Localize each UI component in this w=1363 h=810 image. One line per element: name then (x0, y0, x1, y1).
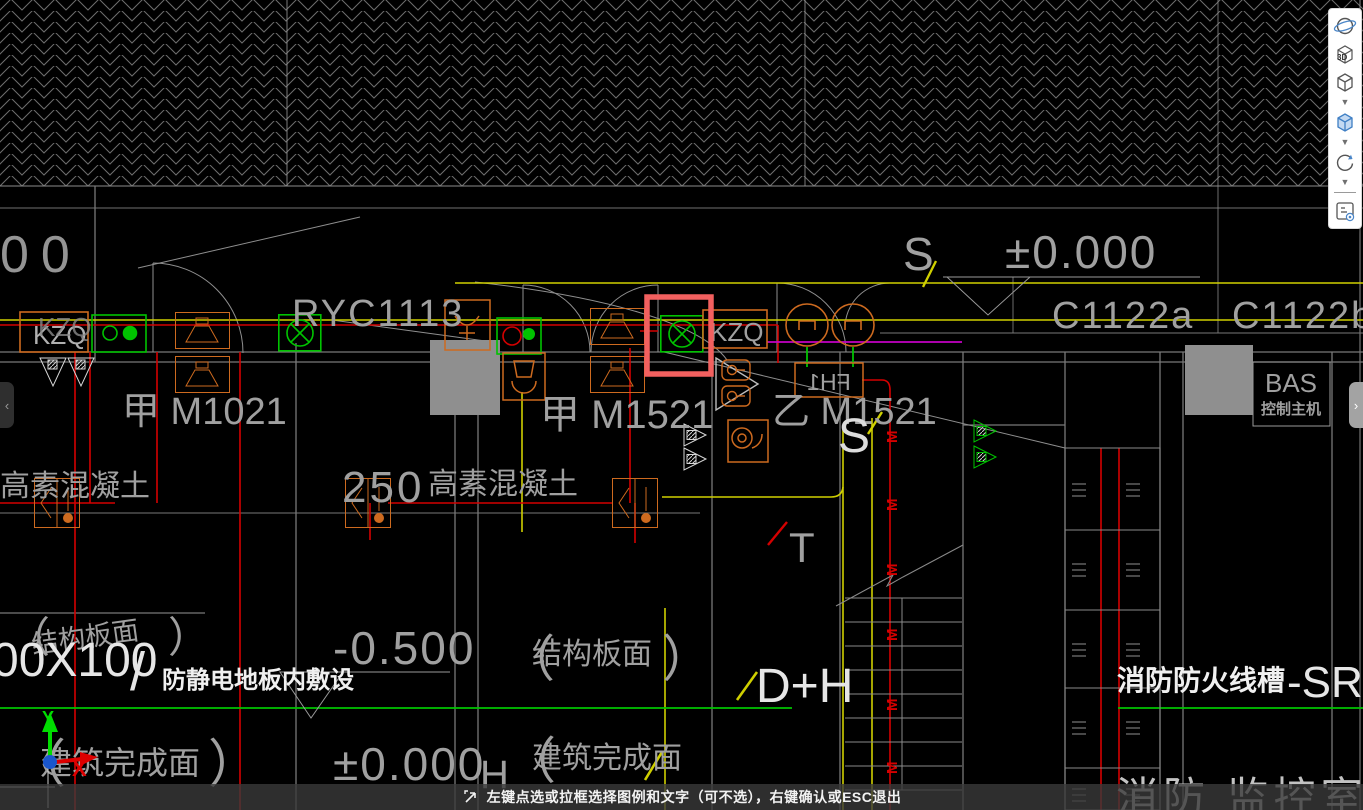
cad-viewer-window: 00 KZQ KZQ RYC1113 S ±0.000 C1122a C1122… (0, 0, 1363, 810)
m-wire-marker: M (884, 564, 901, 577)
3d-view-label: 3D (1337, 53, 1347, 62)
view-toolbar: 3D ▼ ▼ ▼ (1328, 8, 1362, 229)
s-marker-mid: S (838, 410, 870, 463)
paren: ） (168, 614, 210, 661)
m-wire-marker: M (884, 762, 901, 775)
m-wire-marker: M (884, 499, 901, 512)
concrete-column (430, 340, 500, 415)
staircase (836, 545, 963, 790)
3d-view-button[interactable]: 3D (1332, 41, 1358, 67)
partial-number-label: 00 (0, 226, 82, 284)
ucs-x-label: X (72, 756, 87, 781)
right-panel-collapse-tab[interactable]: › (1349, 382, 1363, 428)
level-bottom-label: ±0.000 (333, 738, 485, 790)
rotate-view-button[interactable] (1332, 149, 1358, 175)
dh-marker: D+H (756, 660, 853, 713)
fire-tray-code: -SR-200X10 (1287, 658, 1363, 707)
yellow-wires (0, 261, 1363, 810)
fh1-label-mirrored: FH1 (807, 369, 850, 395)
solid-cube-options-caret[interactable]: ▼ (1335, 137, 1355, 147)
alarm-bell-icon (728, 420, 768, 462)
cube-view-button[interactable] (1332, 69, 1358, 95)
struct-surface-label: 结构板面 (532, 638, 652, 671)
indicator-light-box-2 (497, 318, 541, 354)
duct-slash: / (130, 642, 145, 702)
cad-text-layer: 00 KZQ KZQ RYC1113 S ±0.000 C1122a C1122… (0, 226, 1363, 810)
t-marker: T (789, 524, 815, 571)
solid-cube-view-button[interactable] (1332, 109, 1358, 135)
sheet-visibility-button[interactable] (1332, 198, 1358, 224)
riser-shaft (1065, 448, 1160, 810)
concrete-label: 高素混凝土 (0, 470, 150, 503)
m-wire-marker: M (884, 431, 901, 444)
bas-sub-label: 控制主机 (1261, 400, 1321, 418)
toolbar-divider (1334, 192, 1356, 193)
antistatic-label: 防静电地板内敷设 (162, 666, 354, 694)
dim-250-label: 250 (342, 463, 424, 512)
detector-icons-stack (716, 358, 758, 410)
orbit-tool-button[interactable] (1332, 13, 1358, 39)
hatch-triangle-icon (684, 448, 706, 470)
fire-phone-icon (786, 304, 828, 346)
concrete-label: 高素混凝土 (428, 468, 578, 501)
ucs-y-label: Y (42, 708, 54, 728)
level-top-label: ±0.000 (1005, 226, 1157, 278)
s-marker-top: S (903, 228, 934, 280)
paren: ） (662, 631, 712, 687)
speaker-icon (176, 313, 230, 349)
manual-call-point-icon (613, 478, 658, 528)
window-label-a: C1122a (1052, 295, 1194, 337)
ceiling-lamp-icon-selected (661, 316, 703, 352)
fire-tray-label: 消防防火线槽 (1117, 665, 1285, 696)
speaker-icon (591, 309, 645, 345)
door-label: 甲 M1021 (122, 391, 287, 433)
cube-view-options-caret[interactable]: ▼ (1335, 97, 1355, 107)
fire-phone-icon (832, 304, 874, 346)
selection-cursor-icon (462, 788, 480, 806)
level-neg-label: -0.500 (333, 622, 475, 674)
status-hint-text: 左键点选或拉框选择图例和文字（可不选），右键确认或ESC退出 (487, 787, 902, 807)
rotate-options-caret[interactable]: ▼ (1335, 177, 1355, 187)
concrete-column (1185, 345, 1253, 415)
m-wire-marker: M (884, 629, 901, 642)
ryc-label: RYC1113 (292, 293, 464, 335)
bell-icon (503, 353, 545, 400)
finish-surface-label: 建筑完成面 (532, 742, 682, 775)
kzq-label-echo: KZQ (38, 312, 91, 342)
drawing-canvas[interactable]: 00 KZQ KZQ RYC1113 S ±0.000 C1122a C1122… (0, 0, 1363, 810)
hatch-triangle-icon (974, 446, 996, 468)
m-wire-marker: M (884, 699, 901, 712)
window-label-b: C1122b (1232, 295, 1363, 337)
door-label: 甲 M1521 (540, 393, 713, 437)
kzq-label-mid: KZQ (710, 317, 763, 347)
left-tab-arrow: ‹ (5, 398, 9, 413)
status-hint-bar: 左键点选或拉框选择图例和文字（可不选），右键确认或ESC退出 (0, 784, 1363, 810)
right-tab-arrow: › (1354, 398, 1358, 413)
left-panel-collapse-tab[interactable]: ‹ (0, 382, 14, 428)
bas-label: BAS (1265, 368, 1317, 398)
